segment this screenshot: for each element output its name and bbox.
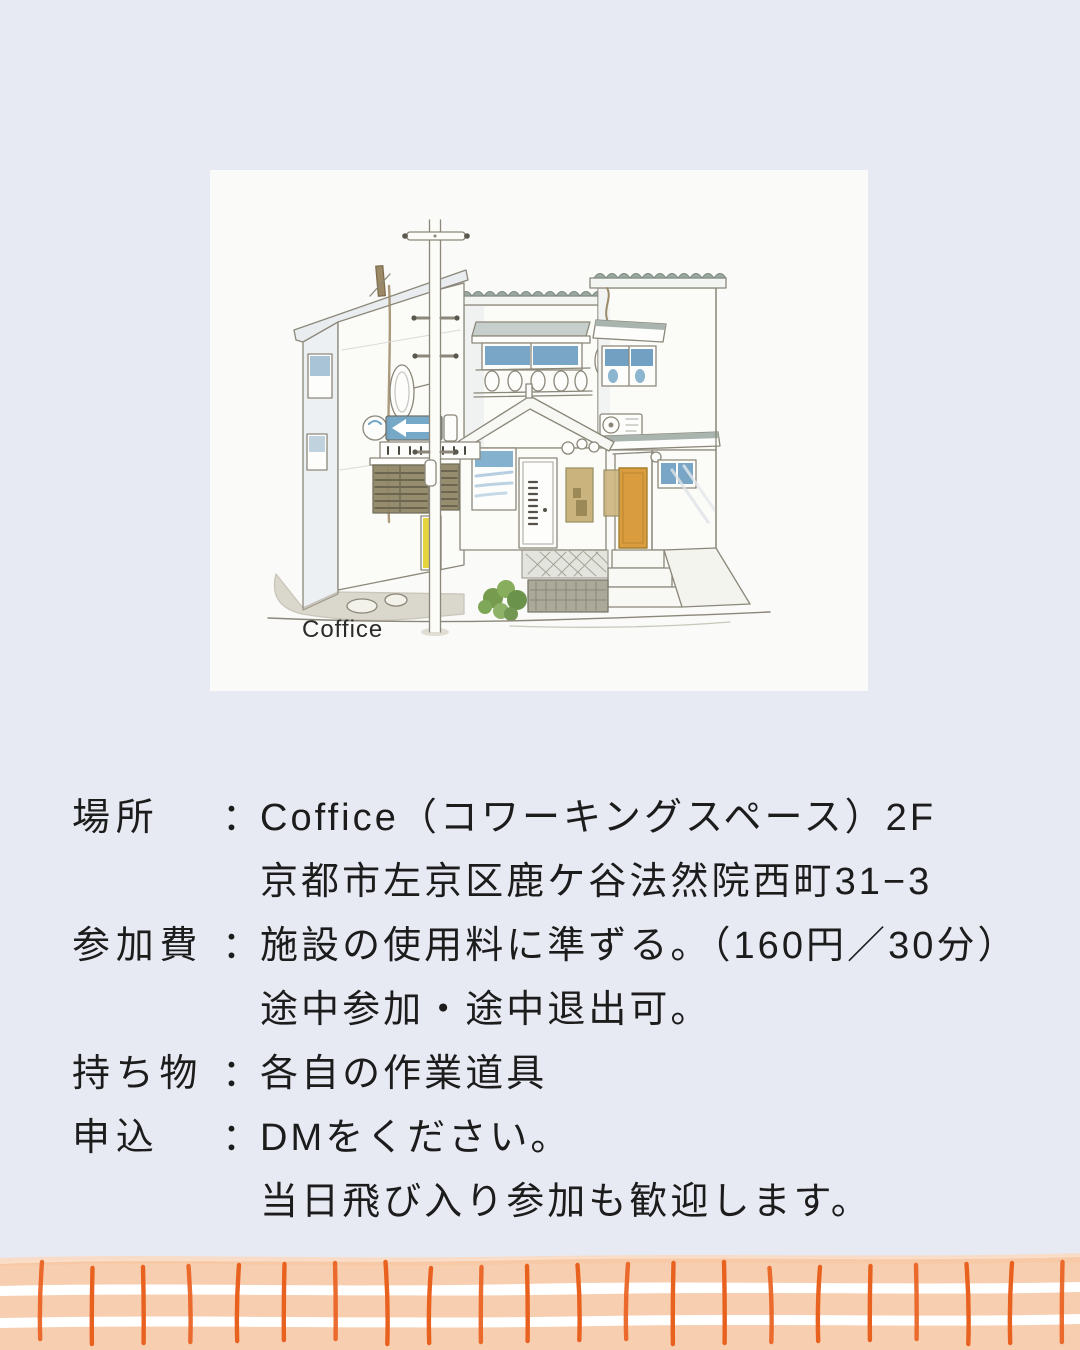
building-illustration <box>210 170 868 691</box>
info-row-apply: 申込 ： DMをください。 当日飛び入り参加も歓迎します。 <box>72 1106 1047 1234</box>
info-colon: ： <box>222 1106 260 1170</box>
entrance-steps-sketch <box>522 550 608 612</box>
center-building-sketch <box>456 292 613 449</box>
info-label: 場所 <box>72 786 222 850</box>
info-line: 京都市左京区鹿ケ谷法然院西町31−3 <box>260 850 1047 914</box>
right-building-sketch <box>590 274 750 608</box>
footer-border-decoration <box>0 1248 1080 1350</box>
info-content: Coffice（コワーキングスペース）2F 京都市左京区鹿ケ谷法然院西町31−3 <box>260 786 1047 914</box>
info-label: 持ち物 <box>72 1042 222 1106</box>
info-colon: ： <box>222 914 260 978</box>
info-label: 申込 <box>72 1106 222 1170</box>
info-row-fee: 参加費 ： 施設の使用料に準ずる。（160円／30分） 途中参加・途中退出可。 <box>72 914 1047 1042</box>
info-row-place: 場所 ： Coffice（コワーキングスペース）2F 京都市左京区鹿ケ谷法然院西… <box>72 786 1047 914</box>
info-line: 当日飛び入り参加も歓迎します。 <box>260 1170 1047 1234</box>
grille-windows-sketch <box>370 458 459 513</box>
info-colon: ： <box>222 786 260 850</box>
info-line: 各自の作業道具 <box>260 1042 1047 1106</box>
event-details: 場所 ： Coffice（コワーキングスペース）2F 京都市左京区鹿ケ谷法然院西… <box>72 786 1047 1234</box>
info-content: 各自の作業道具 <box>260 1042 1047 1106</box>
info-line: 施設の使用料に準ずる。（160円／30分） <box>260 914 1047 978</box>
info-content: 施設の使用料に準ずる。（160円／30分） 途中参加・途中退出可。 <box>260 914 1047 1042</box>
info-content: DMをください。 当日飛び入り参加も歓迎します。 <box>260 1106 1047 1234</box>
illustration-card: Coffice <box>210 170 868 691</box>
info-line: DMをください。 <box>260 1106 1047 1170</box>
info-label: 参加費 <box>72 914 222 978</box>
illustration-caption: Coffice <box>302 616 383 644</box>
info-line: 途中参加・途中退出可。 <box>260 978 1047 1042</box>
bush-sketch <box>478 580 527 621</box>
info-row-items: 持ち物 ： 各自の作業道具 <box>72 1042 1047 1106</box>
info-colon: ： <box>222 1042 260 1106</box>
info-line: Coffice（コワーキングスペース）2F <box>260 786 1047 850</box>
